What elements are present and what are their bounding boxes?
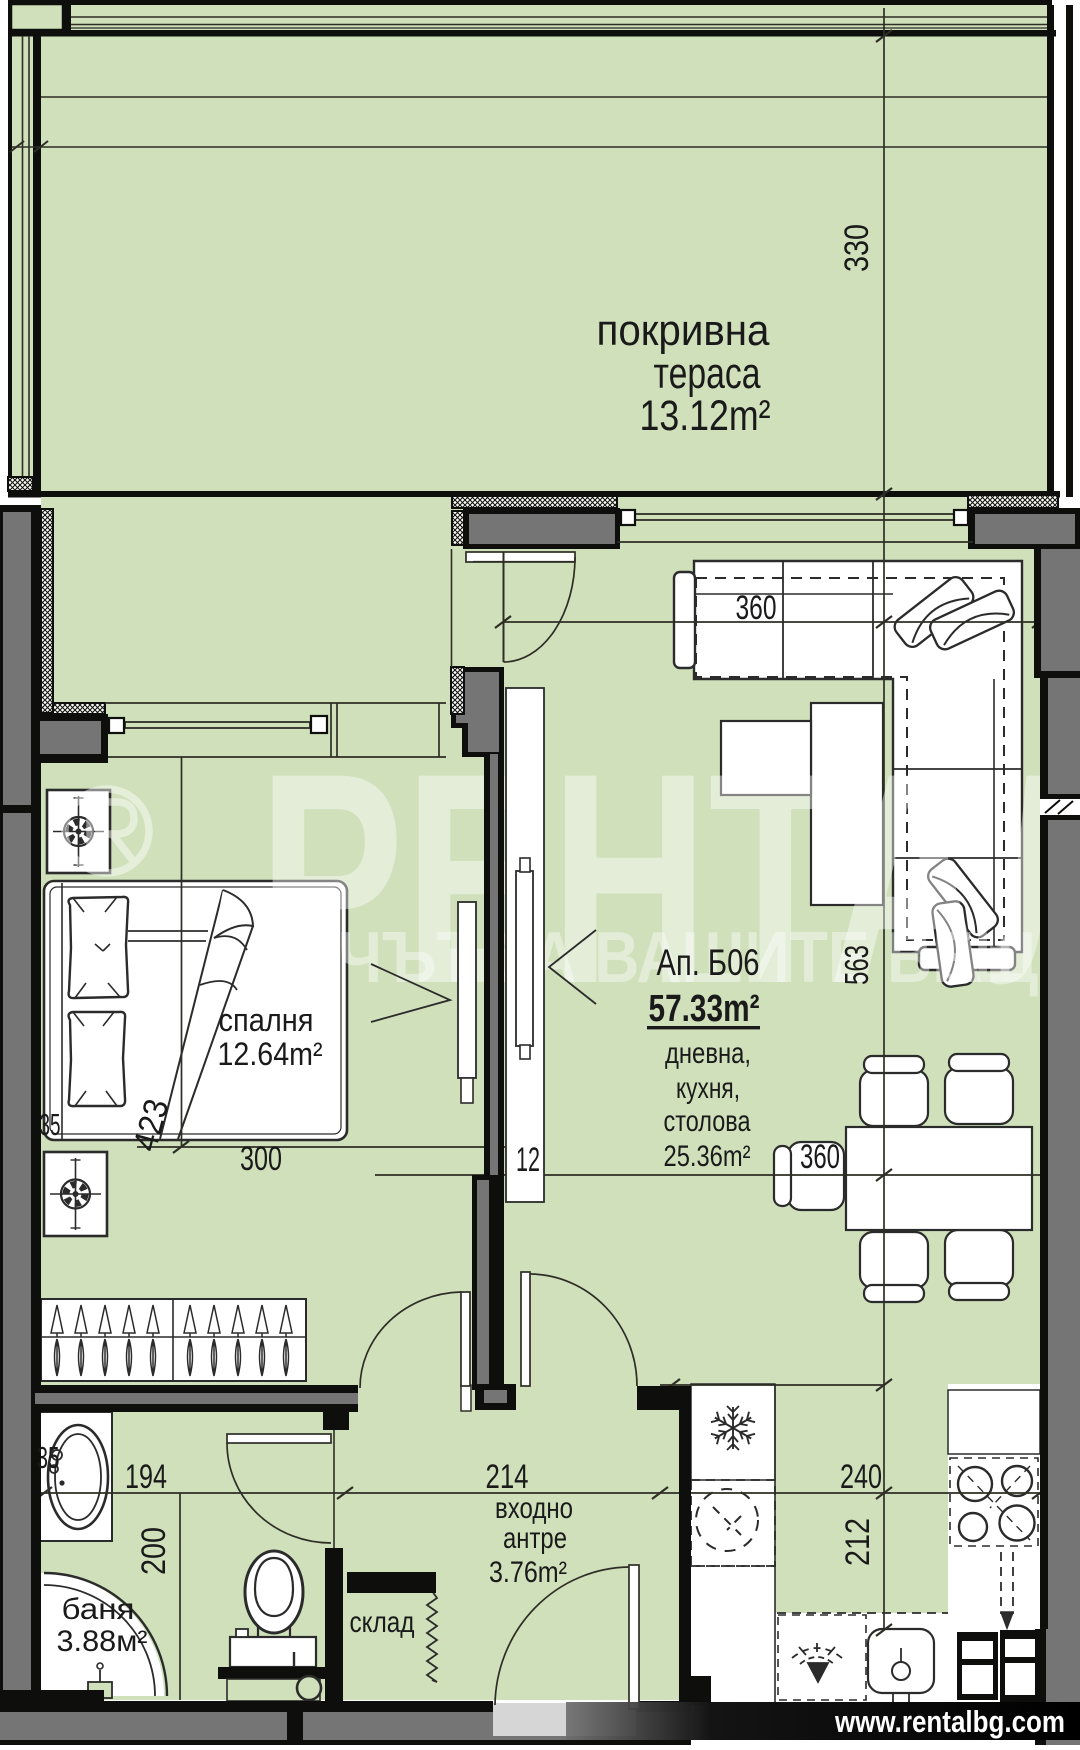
svg-text:563: 563 [838, 945, 875, 985]
svg-text:214: 214 [486, 1458, 529, 1496]
svg-text:12.64m²: 12.64m² [218, 1036, 323, 1072]
svg-text:240: 240 [840, 1458, 882, 1496]
svg-text:57.33m²: 57.33m² [649, 988, 760, 1030]
svg-text:330: 330 [838, 224, 876, 272]
svg-text:25.36m²: 25.36m² [664, 1140, 751, 1173]
svg-text:столова: столова [664, 1105, 751, 1138]
svg-text:дневна,: дневна, [665, 1037, 751, 1070]
svg-text:тераса: тераса [654, 349, 761, 398]
svg-text:Ап. Б06: Ап. Б06 [657, 942, 760, 983]
svg-text:входно: входно [495, 1492, 573, 1525]
svg-text:360: 360 [800, 1138, 840, 1176]
svg-text:кухня,: кухня, [676, 1072, 740, 1105]
svg-text:35: 35 [40, 1107, 61, 1142]
svg-text:212: 212 [839, 1518, 877, 1566]
svg-text:194: 194 [125, 1458, 167, 1496]
svg-text:200: 200 [135, 1527, 173, 1575]
svg-text:www.rentalbg.com: www.rentalbg.com [834, 1704, 1065, 1739]
svg-text:баня: баня [62, 1593, 135, 1626]
svg-text:12: 12 [516, 1141, 540, 1179]
svg-text:покривна: покривна [597, 306, 770, 355]
svg-text:300: 300 [240, 1140, 282, 1178]
svg-text:спалня: спалня [219, 1002, 314, 1038]
svg-text:360: 360 [736, 589, 777, 627]
svg-text:склад: склад [350, 1606, 415, 1639]
svg-text:13.12m²: 13.12m² [640, 392, 771, 440]
svg-text:3.88м²: 3.88м² [57, 1625, 148, 1658]
svg-text:антре: антре [503, 1522, 567, 1555]
svg-text:3.76m²: 3.76m² [489, 1556, 567, 1589]
svg-text:35: 35 [37, 1440, 60, 1475]
